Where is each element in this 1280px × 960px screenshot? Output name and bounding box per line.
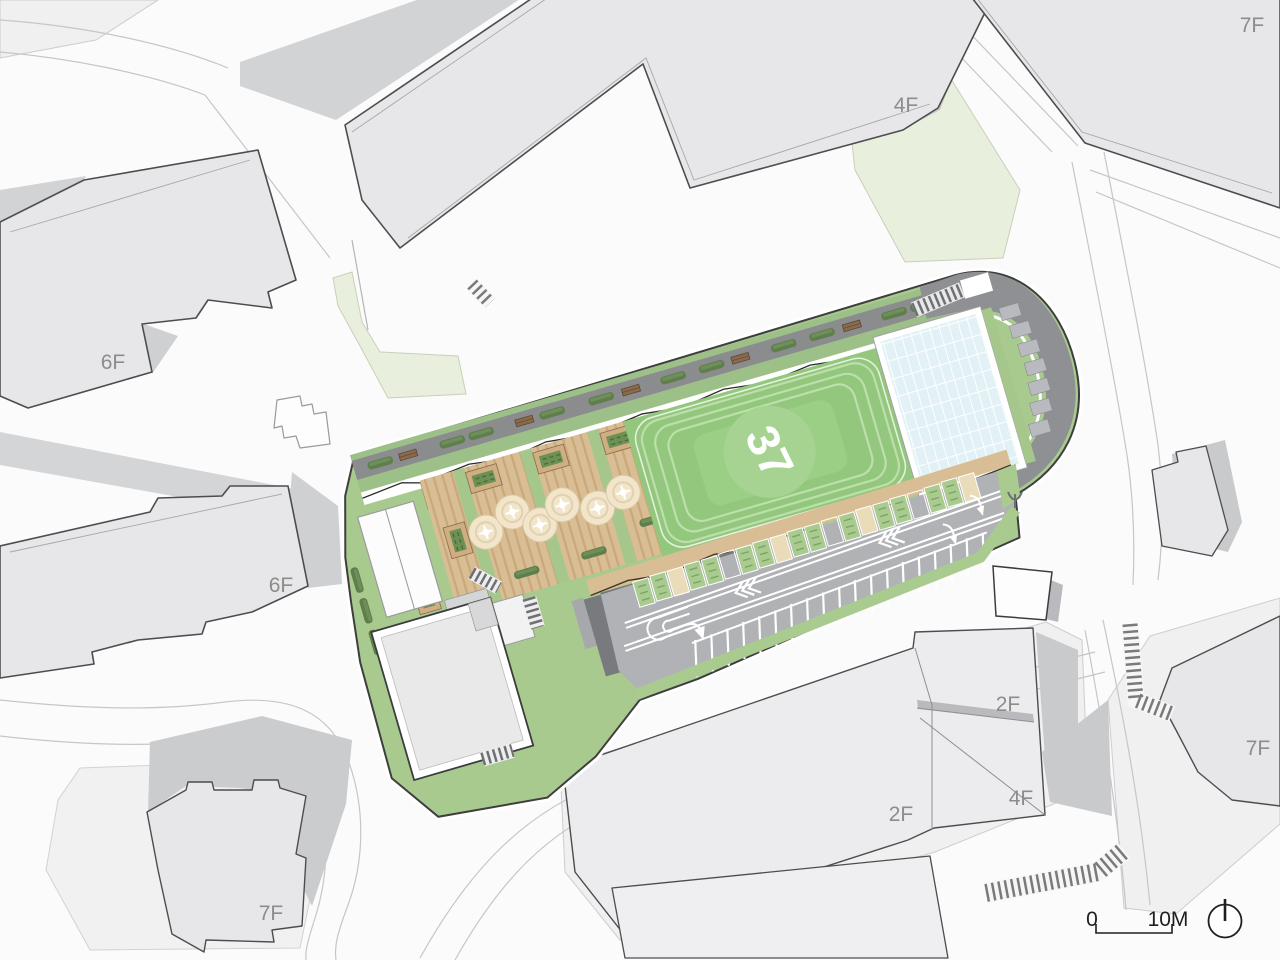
floor-label: 7F [1240,14,1265,37]
floor-label: 2F [996,693,1021,716]
floor-label: 2F [889,803,914,826]
floor-label: 6F [101,351,126,374]
floor-label: 6F [269,574,294,597]
site-plan: 37 [0,0,1280,960]
floor-label: 7F [259,902,284,925]
building-7f-bottom-left [147,780,306,952]
scale-end-label: 10M [1148,908,1189,931]
floor-label: 4F [1009,787,1034,810]
floor-label: 4F [894,94,919,117]
site-plan-canvas: 37 [0,0,1280,960]
floor-label: 7F [1246,737,1271,760]
